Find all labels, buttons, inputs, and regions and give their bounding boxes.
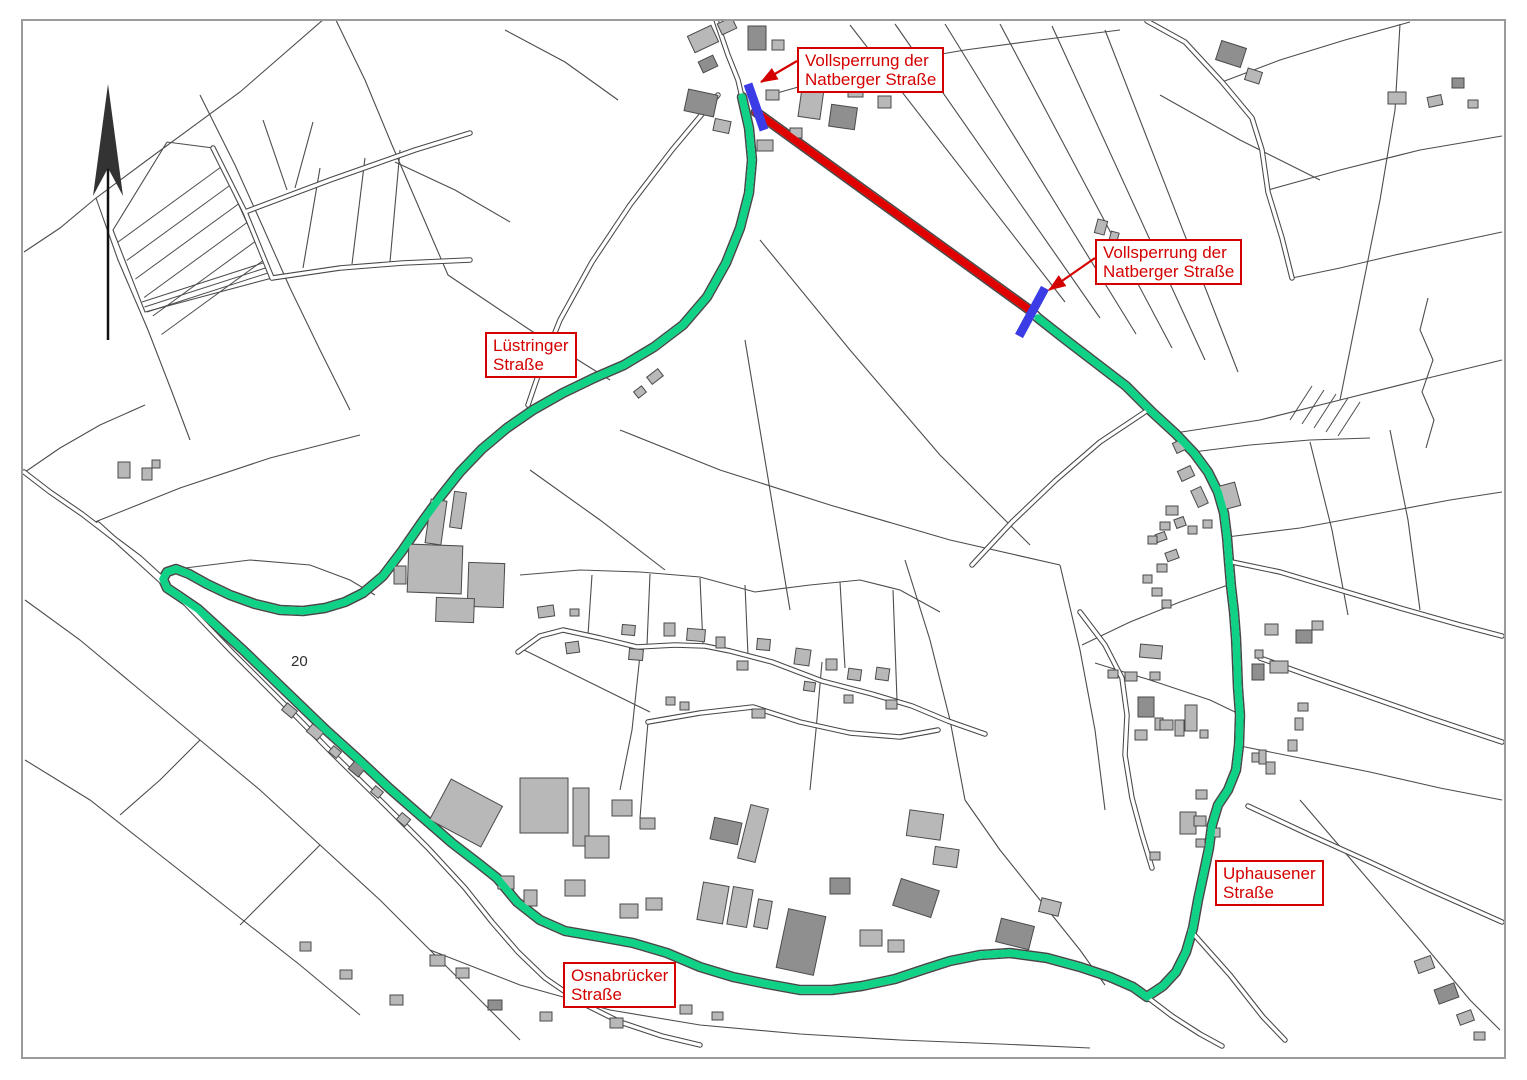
road-label-luestringer-strasse: Lüstringer Straße	[485, 332, 577, 378]
label-leader-arrow	[1049, 258, 1095, 290]
road-label-osnabruecker-strasse: Osnabrücker Straße	[563, 962, 676, 1008]
road-label-vollsperrung-natberger-top: Vollsperrung der Natberger Straße	[797, 47, 944, 93]
map-svg	[0, 0, 1527, 1080]
closure-marker	[1019, 288, 1045, 336]
road-label-vollsperrung-natberger-mid: Vollsperrung der Natberger Straße	[1095, 239, 1242, 285]
road-label-uphausener-strasse: Uphausener Straße	[1215, 860, 1324, 906]
north-arrow-icon	[93, 84, 123, 340]
house-number-label: 20	[291, 653, 308, 670]
road-closure-detour-map: 20 Vollsperrung der Natberger StraßeVoll…	[0, 0, 1527, 1080]
closed-road-natberger	[756, 112, 1031, 311]
detour-route	[163, 97, 1147, 997]
label-leader-arrow	[761, 61, 797, 82]
